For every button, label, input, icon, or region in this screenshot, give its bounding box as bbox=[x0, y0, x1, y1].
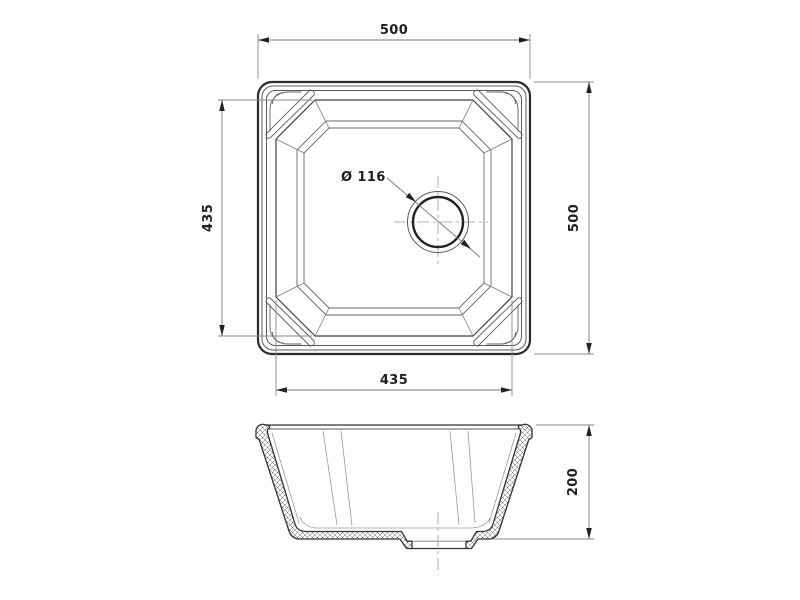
leader-arrowhead bbox=[406, 193, 416, 202]
bowl-bottom-octagon-inner bbox=[304, 128, 484, 308]
dim-arrowhead bbox=[219, 325, 225, 336]
dim-arrowhead bbox=[276, 387, 287, 393]
overall-height-label: 500 bbox=[567, 204, 582, 232]
sink-technical-drawing: Ø 116 500 500 435 bbox=[0, 0, 800, 600]
technical-drawing-page: Ø 116 500 500 435 bbox=[0, 0, 800, 600]
bowl-width-label: 435 bbox=[380, 373, 408, 388]
dim-bowl-width: 435 bbox=[276, 300, 512, 396]
interior-corner-edge bbox=[323, 431, 337, 525]
corner-wing-line-inner bbox=[270, 95, 314, 138]
dim-overall-width: 500 bbox=[258, 23, 530, 79]
dim-arrowhead bbox=[219, 100, 225, 111]
depth-label: 200 bbox=[566, 468, 581, 496]
dim-arrowhead bbox=[586, 82, 592, 93]
dim-arrowhead bbox=[501, 387, 512, 393]
interior-corner-edge bbox=[468, 431, 475, 523]
section-right-wall bbox=[466, 424, 532, 548]
interior-corner-edge bbox=[450, 431, 459, 525]
dim-arrowhead bbox=[586, 343, 592, 354]
dim-bowl-height: 435 bbox=[201, 100, 312, 336]
interior-corner-edge bbox=[341, 431, 352, 526]
side-view: 200 bbox=[256, 424, 594, 575]
dim-arrowhead bbox=[586, 425, 592, 436]
sink-rim-line bbox=[262, 86, 526, 350]
dim-arrowhead bbox=[258, 37, 269, 43]
corner-arc bbox=[273, 93, 284, 104]
drain-diameter-label: Ø 116 bbox=[341, 170, 386, 185]
bowl-interior-lines bbox=[272, 431, 516, 528]
section-left-wall bbox=[256, 424, 412, 548]
dim-arrowhead bbox=[586, 528, 592, 539]
corner-edge-connector bbox=[315, 100, 329, 128]
dim-overall-height: 500 bbox=[534, 82, 594, 354]
corner-edge-connector bbox=[276, 139, 304, 153]
interior-bottom-edge bbox=[300, 517, 490, 528]
drain bbox=[394, 176, 488, 268]
dim-arrowhead bbox=[519, 37, 530, 43]
overall-width-label: 500 bbox=[380, 23, 408, 38]
sink-outer-edge bbox=[258, 82, 530, 354]
top-view: Ø 116 500 500 435 bbox=[201, 23, 594, 396]
bowl-height-label: 435 bbox=[201, 204, 216, 232]
sink-rim-inner-line bbox=[267, 91, 522, 346]
